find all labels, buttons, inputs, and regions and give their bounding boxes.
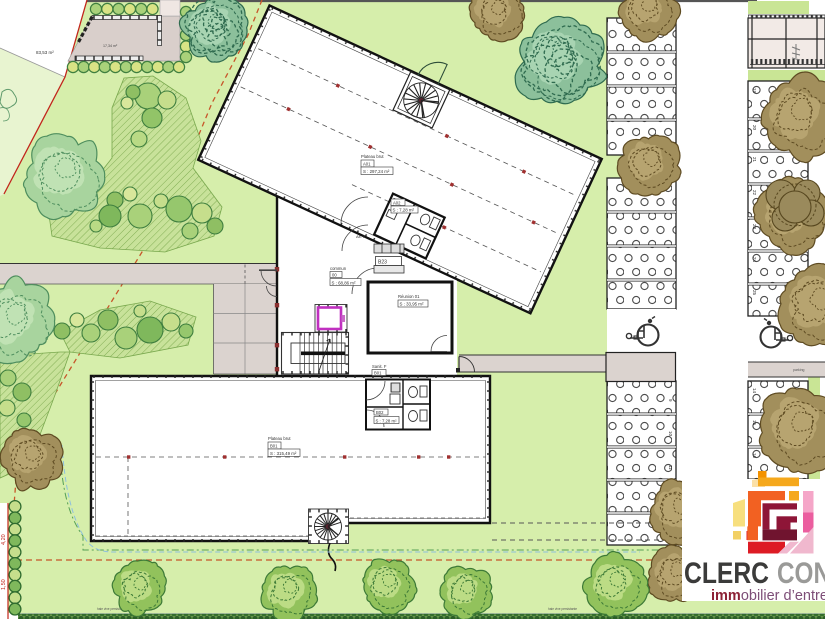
svg-text:83,53 m²: 83,53 m² [36, 50, 54, 55]
svg-text:19: 19 [752, 88, 757, 94]
svg-text:CLERC: CLERC [684, 557, 769, 590]
svg-text:24: 24 [752, 257, 757, 263]
svg-text:immobilier d’entreprise: immobilier d’entreprise [711, 588, 825, 604]
svg-text:A02: A02 [393, 200, 401, 205]
svg-text:14: 14 [752, 388, 757, 394]
svg-text:Plateau brut: Plateau brut [361, 154, 384, 159]
svg-text:S : 315,49 m²: S : 315,49 m² [270, 451, 297, 456]
svg-text:1,50: 1,50 [1, 579, 7, 590]
svg-text:B01: B01 [270, 444, 278, 449]
svg-text:Plateau brut: Plateau brut [268, 436, 291, 441]
svg-text:23: 23 [752, 224, 757, 230]
svg-text:B01: B01 [374, 371, 382, 376]
svg-text:parking: parking [793, 368, 805, 372]
svg-text:Réunion 01: Réunion 01 [398, 294, 420, 299]
svg-text:S : 7,28 m²: S : 7,28 m² [393, 208, 415, 213]
svg-text:commun: commun [330, 266, 347, 271]
svg-text:S : 68,86 m²: S : 68,86 m² [332, 280, 356, 285]
svg-text:A01: A01 [363, 162, 371, 167]
svg-text:11: 11 [668, 465, 673, 470]
svg-text:S : 7,28 m²: S : 7,28 m² [376, 418, 398, 423]
svg-text:B02: B02 [376, 410, 384, 415]
svg-text:16: 16 [752, 453, 757, 459]
svg-text:10: 10 [668, 431, 673, 437]
svg-text:Alt. F: Alt. F [356, 234, 366, 239]
svg-text:20: 20 [752, 125, 757, 131]
svg-text:S : 297,24 m²: S : 297,24 m² [363, 169, 390, 174]
svg-text:22: 22 [752, 190, 757, 196]
svg-text:25: 25 [752, 290, 757, 296]
svg-text:4,20: 4,20 [1, 534, 7, 545]
svg-text:CONSEIL: CONSEIL [777, 557, 825, 590]
svg-text:17,34 m²: 17,34 m² [103, 44, 118, 48]
svg-text:15: 15 [752, 420, 757, 426]
svg-text:Sanit. F: Sanit. F [372, 364, 387, 369]
svg-text:haie vive persistante: haie vive persistante [548, 607, 577, 611]
svg-text:S : 33,95 m²: S : 33,95 m² [400, 302, 424, 307]
svg-text:21: 21 [752, 157, 757, 163]
svg-text:B23: B23 [378, 260, 387, 266]
svg-text:00: 00 [332, 273, 337, 278]
